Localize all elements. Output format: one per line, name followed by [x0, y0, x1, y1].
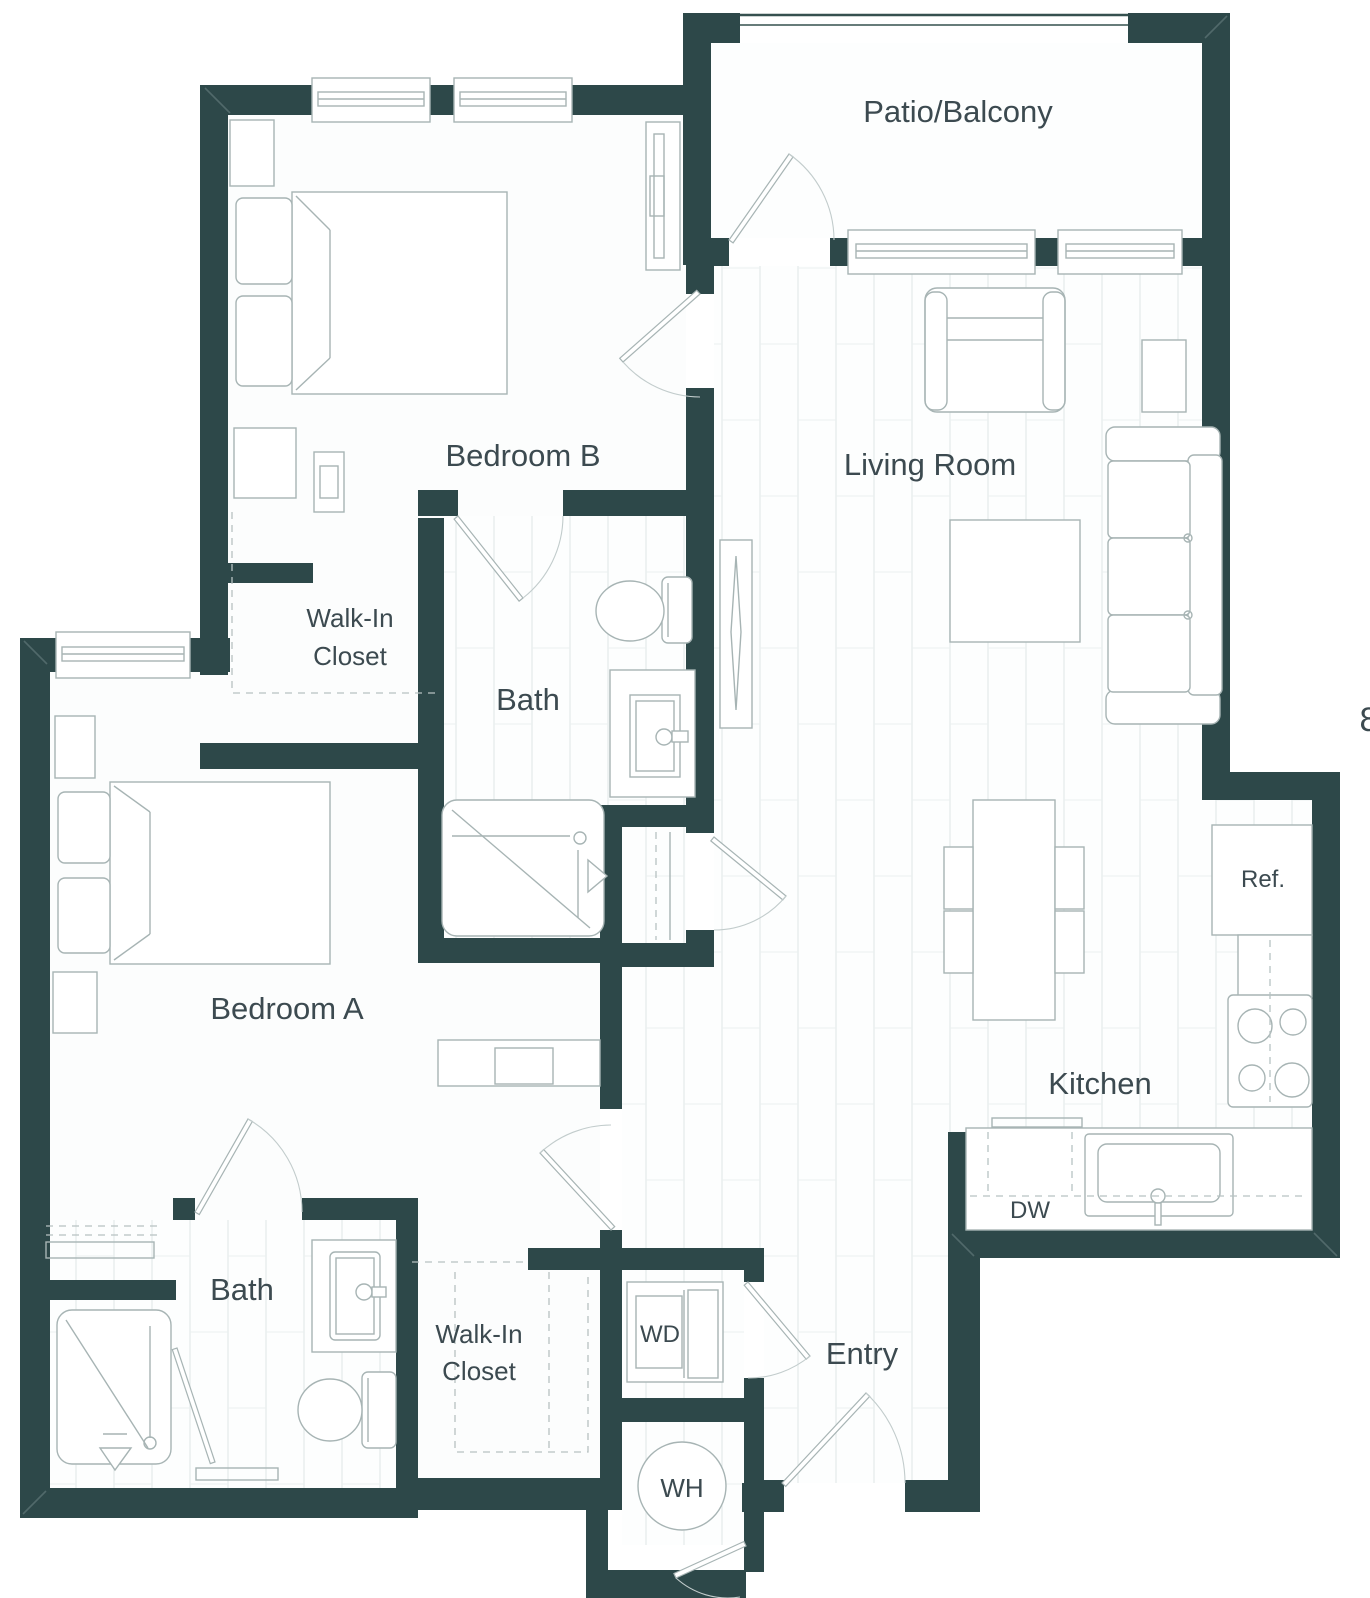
nightstand — [230, 120, 274, 186]
vanity-sink — [312, 1240, 396, 1352]
label-walk-in-b-1: Walk-In — [306, 603, 393, 633]
end-table — [1142, 340, 1186, 412]
dresser-small — [314, 452, 344, 512]
label-bath-a: Bath — [210, 1272, 274, 1307]
label-entry: Entry — [826, 1336, 899, 1371]
dining-table — [973, 800, 1055, 1020]
label-bedroom-a: Bedroom A — [210, 991, 364, 1026]
nightstand — [53, 972, 97, 1033]
nightstand — [234, 428, 296, 498]
chair — [944, 911, 973, 973]
window-living-1 — [848, 230, 1035, 274]
pillow — [58, 792, 110, 863]
coffee-table — [950, 520, 1080, 642]
pillow — [236, 296, 292, 386]
floor-patio — [711, 43, 1202, 238]
sofa — [1106, 427, 1222, 724]
floor-hall-closet — [622, 827, 686, 943]
window-bedroom-a — [56, 632, 190, 678]
window-living-2 — [1058, 230, 1182, 274]
toilet — [596, 577, 692, 643]
dresser-bedroom-b — [646, 122, 680, 270]
shower — [442, 800, 607, 936]
desk-bedroom-a — [438, 1040, 600, 1086]
label-walk-in-a-1: Walk-In — [435, 1319, 522, 1349]
pillow — [58, 878, 110, 953]
label-patio: Patio/Balcony — [863, 94, 1053, 129]
window-bedroom-b-1 — [312, 78, 430, 122]
chair — [1055, 847, 1084, 909]
shower — [57, 1310, 171, 1470]
label-dishwasher: DW — [1010, 1197, 1050, 1224]
chair — [944, 847, 973, 909]
chair — [1055, 911, 1084, 973]
bed-a — [110, 782, 330, 964]
floor-plan-page: Patio/Balcony Bedroom B Living Room Walk… — [0, 0, 1370, 1598]
label-bath-b: Bath — [496, 682, 560, 717]
label-kitchen: Kitchen — [1048, 1066, 1151, 1101]
counter-right — [1238, 935, 1312, 997]
label-walk-in-a-2: Closet — [442, 1356, 516, 1386]
window-bedroom-b-2 — [454, 78, 572, 122]
label-walk-in-b-2: Closet — [313, 641, 387, 671]
label-bedroom-b: Bedroom B — [445, 438, 600, 473]
label-living-room: Living Room — [844, 447, 1016, 482]
label-refrigerator: Ref. — [1241, 866, 1285, 893]
vanity-sink — [610, 670, 695, 797]
armchair — [925, 288, 1065, 412]
label-water-heater: WH — [660, 1473, 703, 1503]
nightstand — [55, 716, 95, 778]
label-washer-dryer: WD — [640, 1321, 680, 1348]
pillow — [236, 198, 292, 284]
toilet — [298, 1372, 396, 1448]
label-edge-dimension: 8 — [1360, 701, 1370, 739]
kitchen-sink — [1085, 1134, 1233, 1225]
floor-plan-drawing: Patio/Balcony Bedroom B Living Room Walk… — [0, 0, 1370, 1598]
